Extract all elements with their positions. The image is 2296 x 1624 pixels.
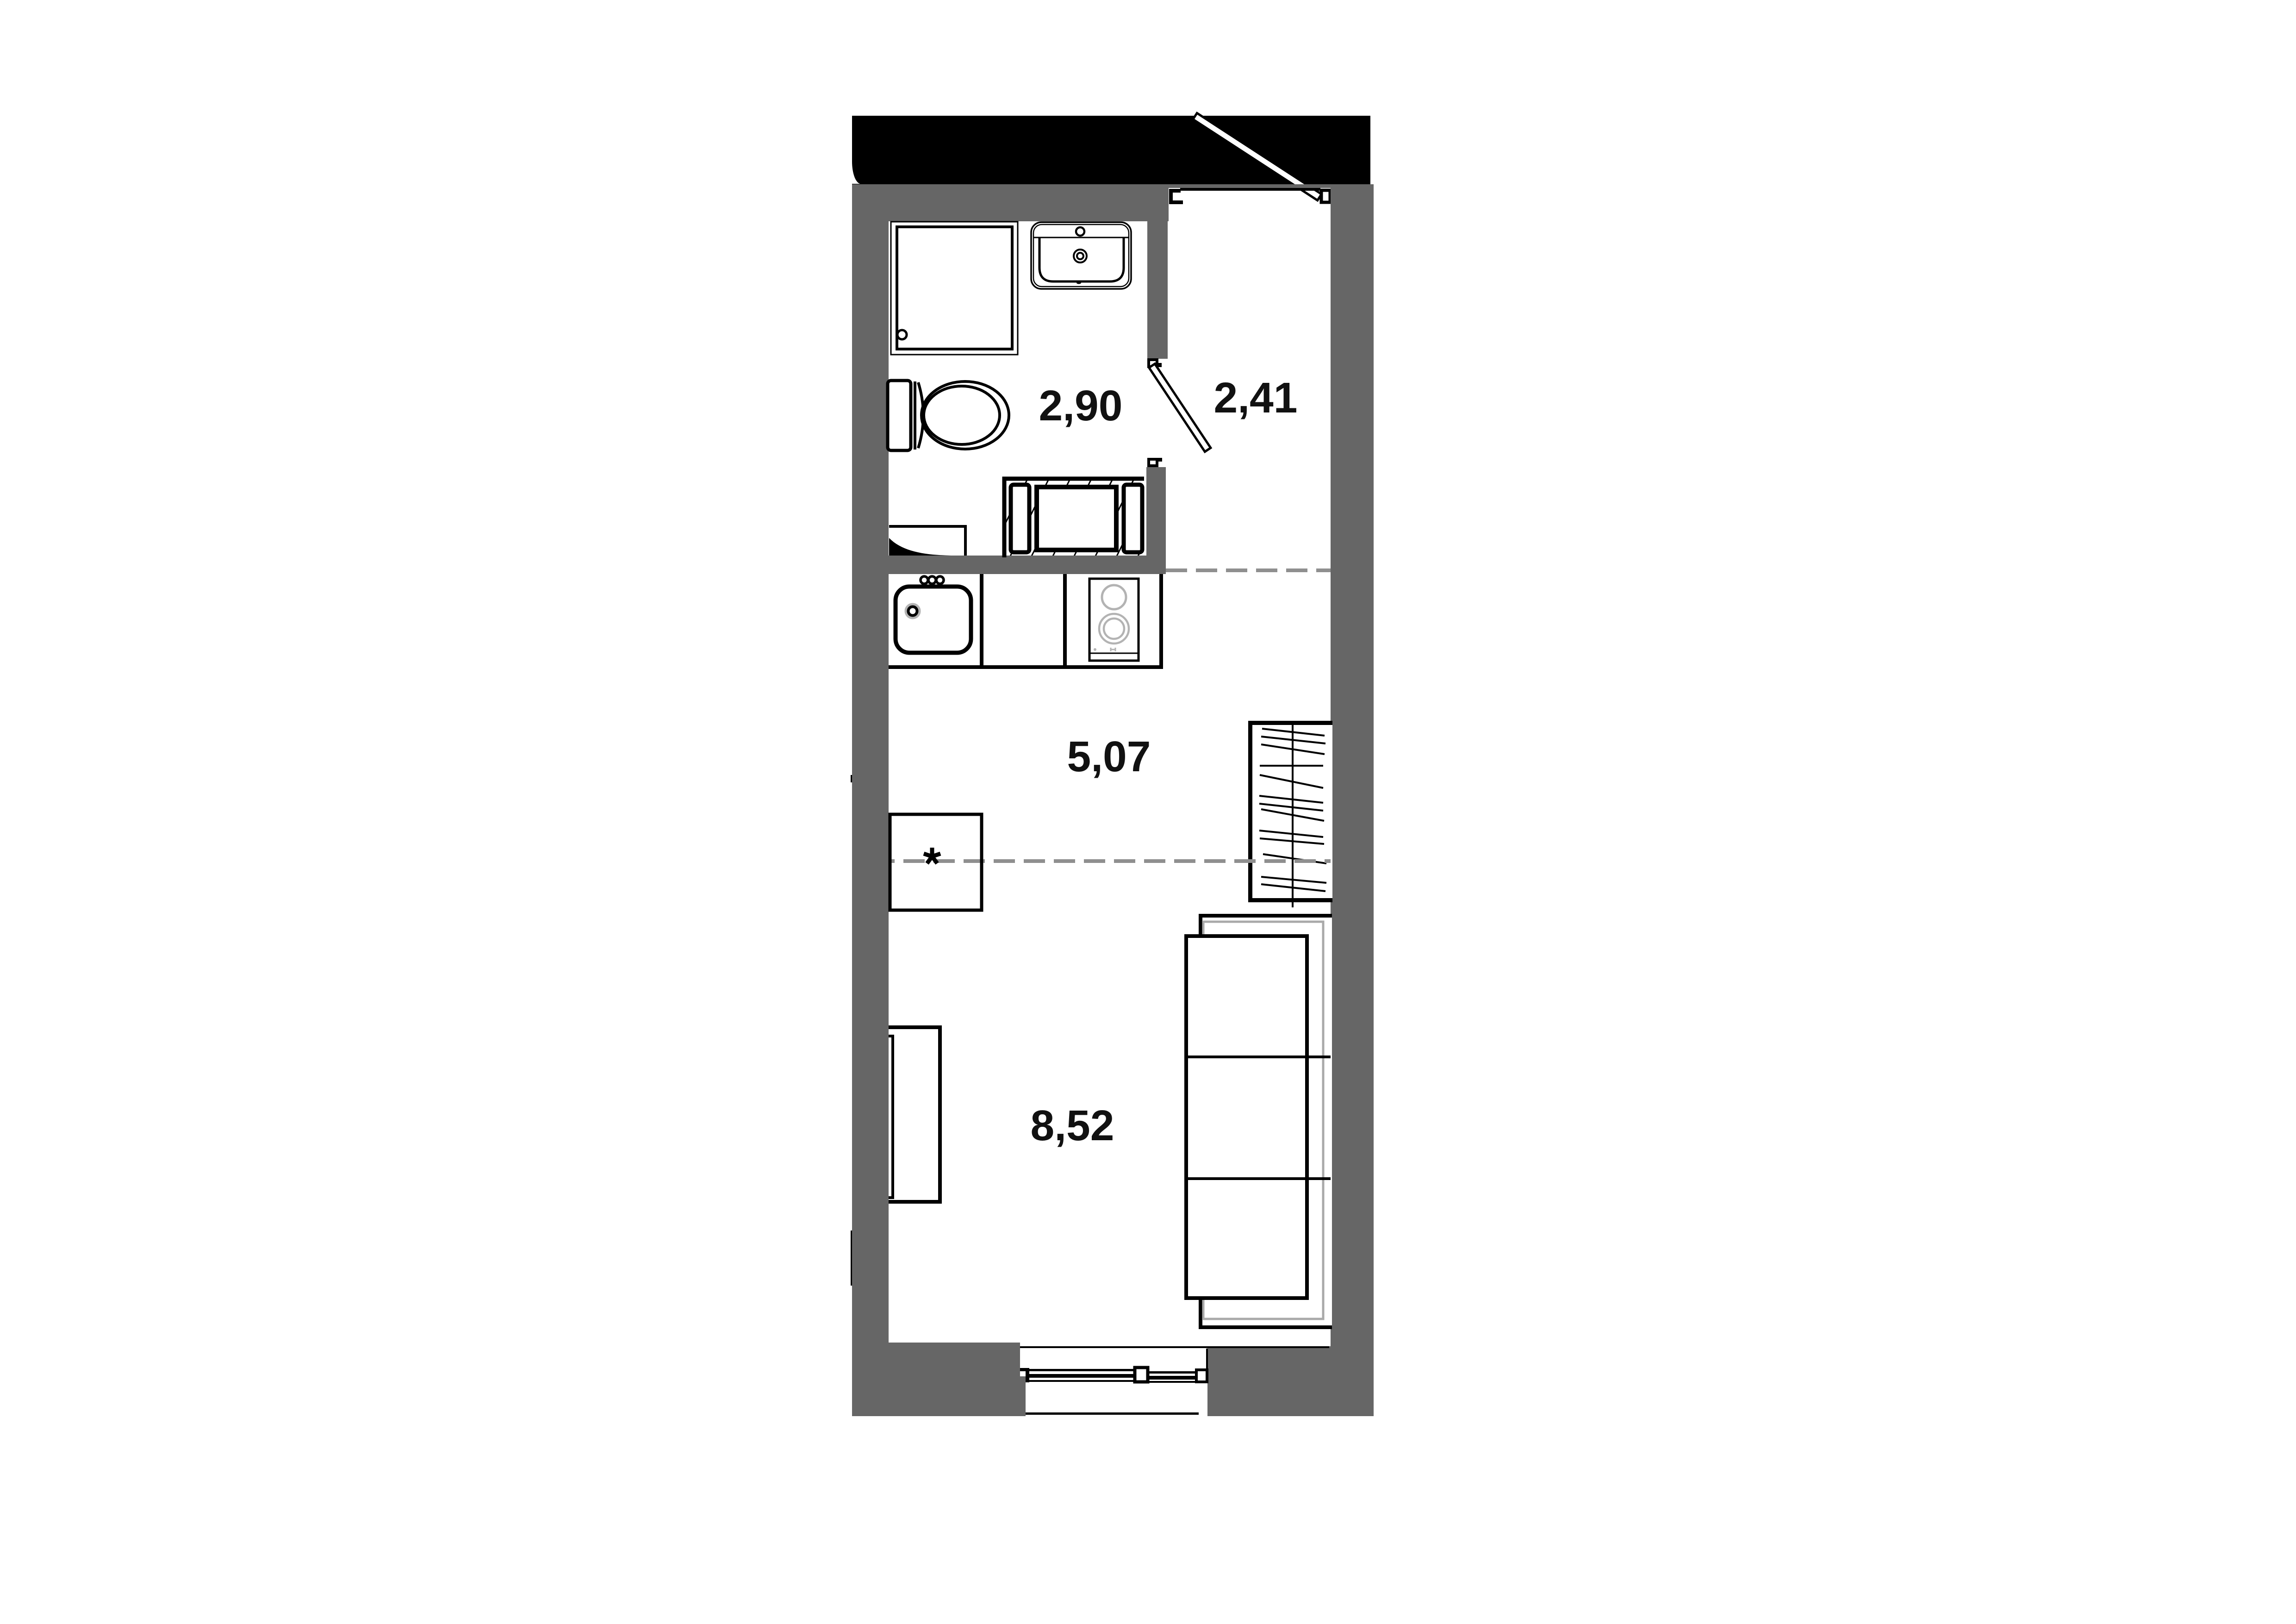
svg-text:2,90: 2,90 [1039,381,1122,430]
svg-text:2,41: 2,41 [1213,374,1297,422]
svg-text:5,07: 5,07 [1067,732,1151,781]
svg-text:8,52: 8,52 [1030,1101,1114,1149]
